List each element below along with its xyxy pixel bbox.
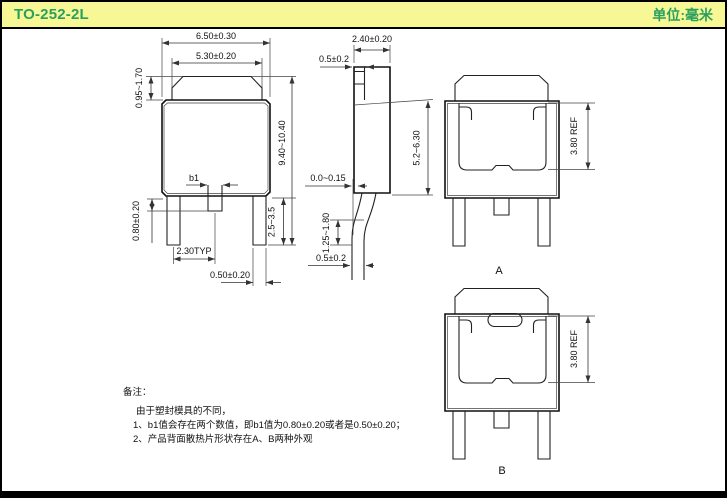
back-view-a: 3.80 REF A: [445, 76, 595, 278]
front-right-lead: [253, 196, 266, 245]
dim-side-body-thickness: 2.40±0.20: [352, 34, 392, 44]
leads-a: [453, 198, 550, 246]
dim-front-overall-height: 9.40~10.40: [277, 120, 287, 165]
dim-front-b1: b1: [189, 173, 199, 183]
tab-outline-b: [455, 289, 548, 315]
package-body-outline: [162, 100, 270, 196]
front-left-lead: [167, 196, 180, 245]
note-item-2: 2、产品背面散热片形状存在A、B两种外观: [133, 434, 312, 445]
dim-pad-ref-a: 3.80 REF: [569, 116, 579, 155]
tab-outline-a: [455, 76, 548, 102]
note-item-1: 1、b1值会存在两个数值，即b1值为0.80±0.20或者是0.50±0.20；: [133, 420, 405, 431]
dim-side-tab-thickness: 0.5±0.2: [319, 54, 349, 64]
dim-side-bend-height: 1.25~1.80: [321, 213, 331, 253]
pad-left-hook-b: [459, 320, 472, 333]
leads-b: [453, 411, 550, 459]
back-view-b: 3.80 REF B: [445, 289, 595, 478]
dim-front-cap-height: 0.95~1.70: [134, 68, 144, 108]
dim-side-body-height: 5.2~6.30: [412, 130, 422, 165]
dim-front-cap-width: 5.30±0.20: [196, 51, 236, 61]
dim-front-lead-pitch: 2.30TYP: [176, 246, 211, 256]
pad-right-hook-b: [534, 320, 547, 333]
view-label-b: B: [498, 465, 505, 477]
datasheet-page: TO-252-2L 单位:毫米 6.50±0.30 5.30±0.20: [0, 0, 727, 498]
body-outline-a: [445, 101, 559, 198]
side-lead-outer-edge: [352, 193, 362, 280]
dim-side-lead-thickness: 0.5±0.2: [316, 253, 346, 263]
front-view: 6.50±0.30 5.30±0.20 0.95~1.70 b1: [131, 31, 296, 286]
view-label-a: A: [495, 265, 503, 277]
dim-pad-ref-b: 3.80 REF: [569, 329, 579, 368]
dim-front-center-lead-length: 0.80±0.20: [131, 201, 141, 241]
pad-slot-b: [488, 314, 522, 327]
dim-front-lead-width: 0.50±0.20: [210, 270, 250, 280]
mold-cap-outline: [172, 77, 262, 101]
notes-heading: 备注：: [123, 387, 152, 398]
dim-front-lead-length: 2.5~3.5: [267, 207, 277, 237]
dim-side-standoff: 0.0~0.15: [310, 173, 345, 183]
front-center-lead: [208, 185, 222, 211]
pad-left-hook-a: [459, 107, 472, 120]
notes-intro: 由于塑封模具的不同，: [136, 406, 231, 417]
side-view: 2.40±0.20 0.5±0.2 5.2~6.30 0.0~0.15: [305, 34, 433, 280]
package-outline-drawing: 6.50±0.30 5.30±0.20 0.95~1.70 b1: [2, 2, 725, 489]
side-body-outline: [354, 67, 390, 193]
side-tab-edge: [354, 67, 365, 100]
dim-front-top-width: 6.50±0.30: [196, 31, 236, 41]
body-outline-b: [445, 314, 559, 411]
pad-right-hook-a: [534, 107, 547, 120]
side-lead-inner-edge: [364, 193, 376, 280]
